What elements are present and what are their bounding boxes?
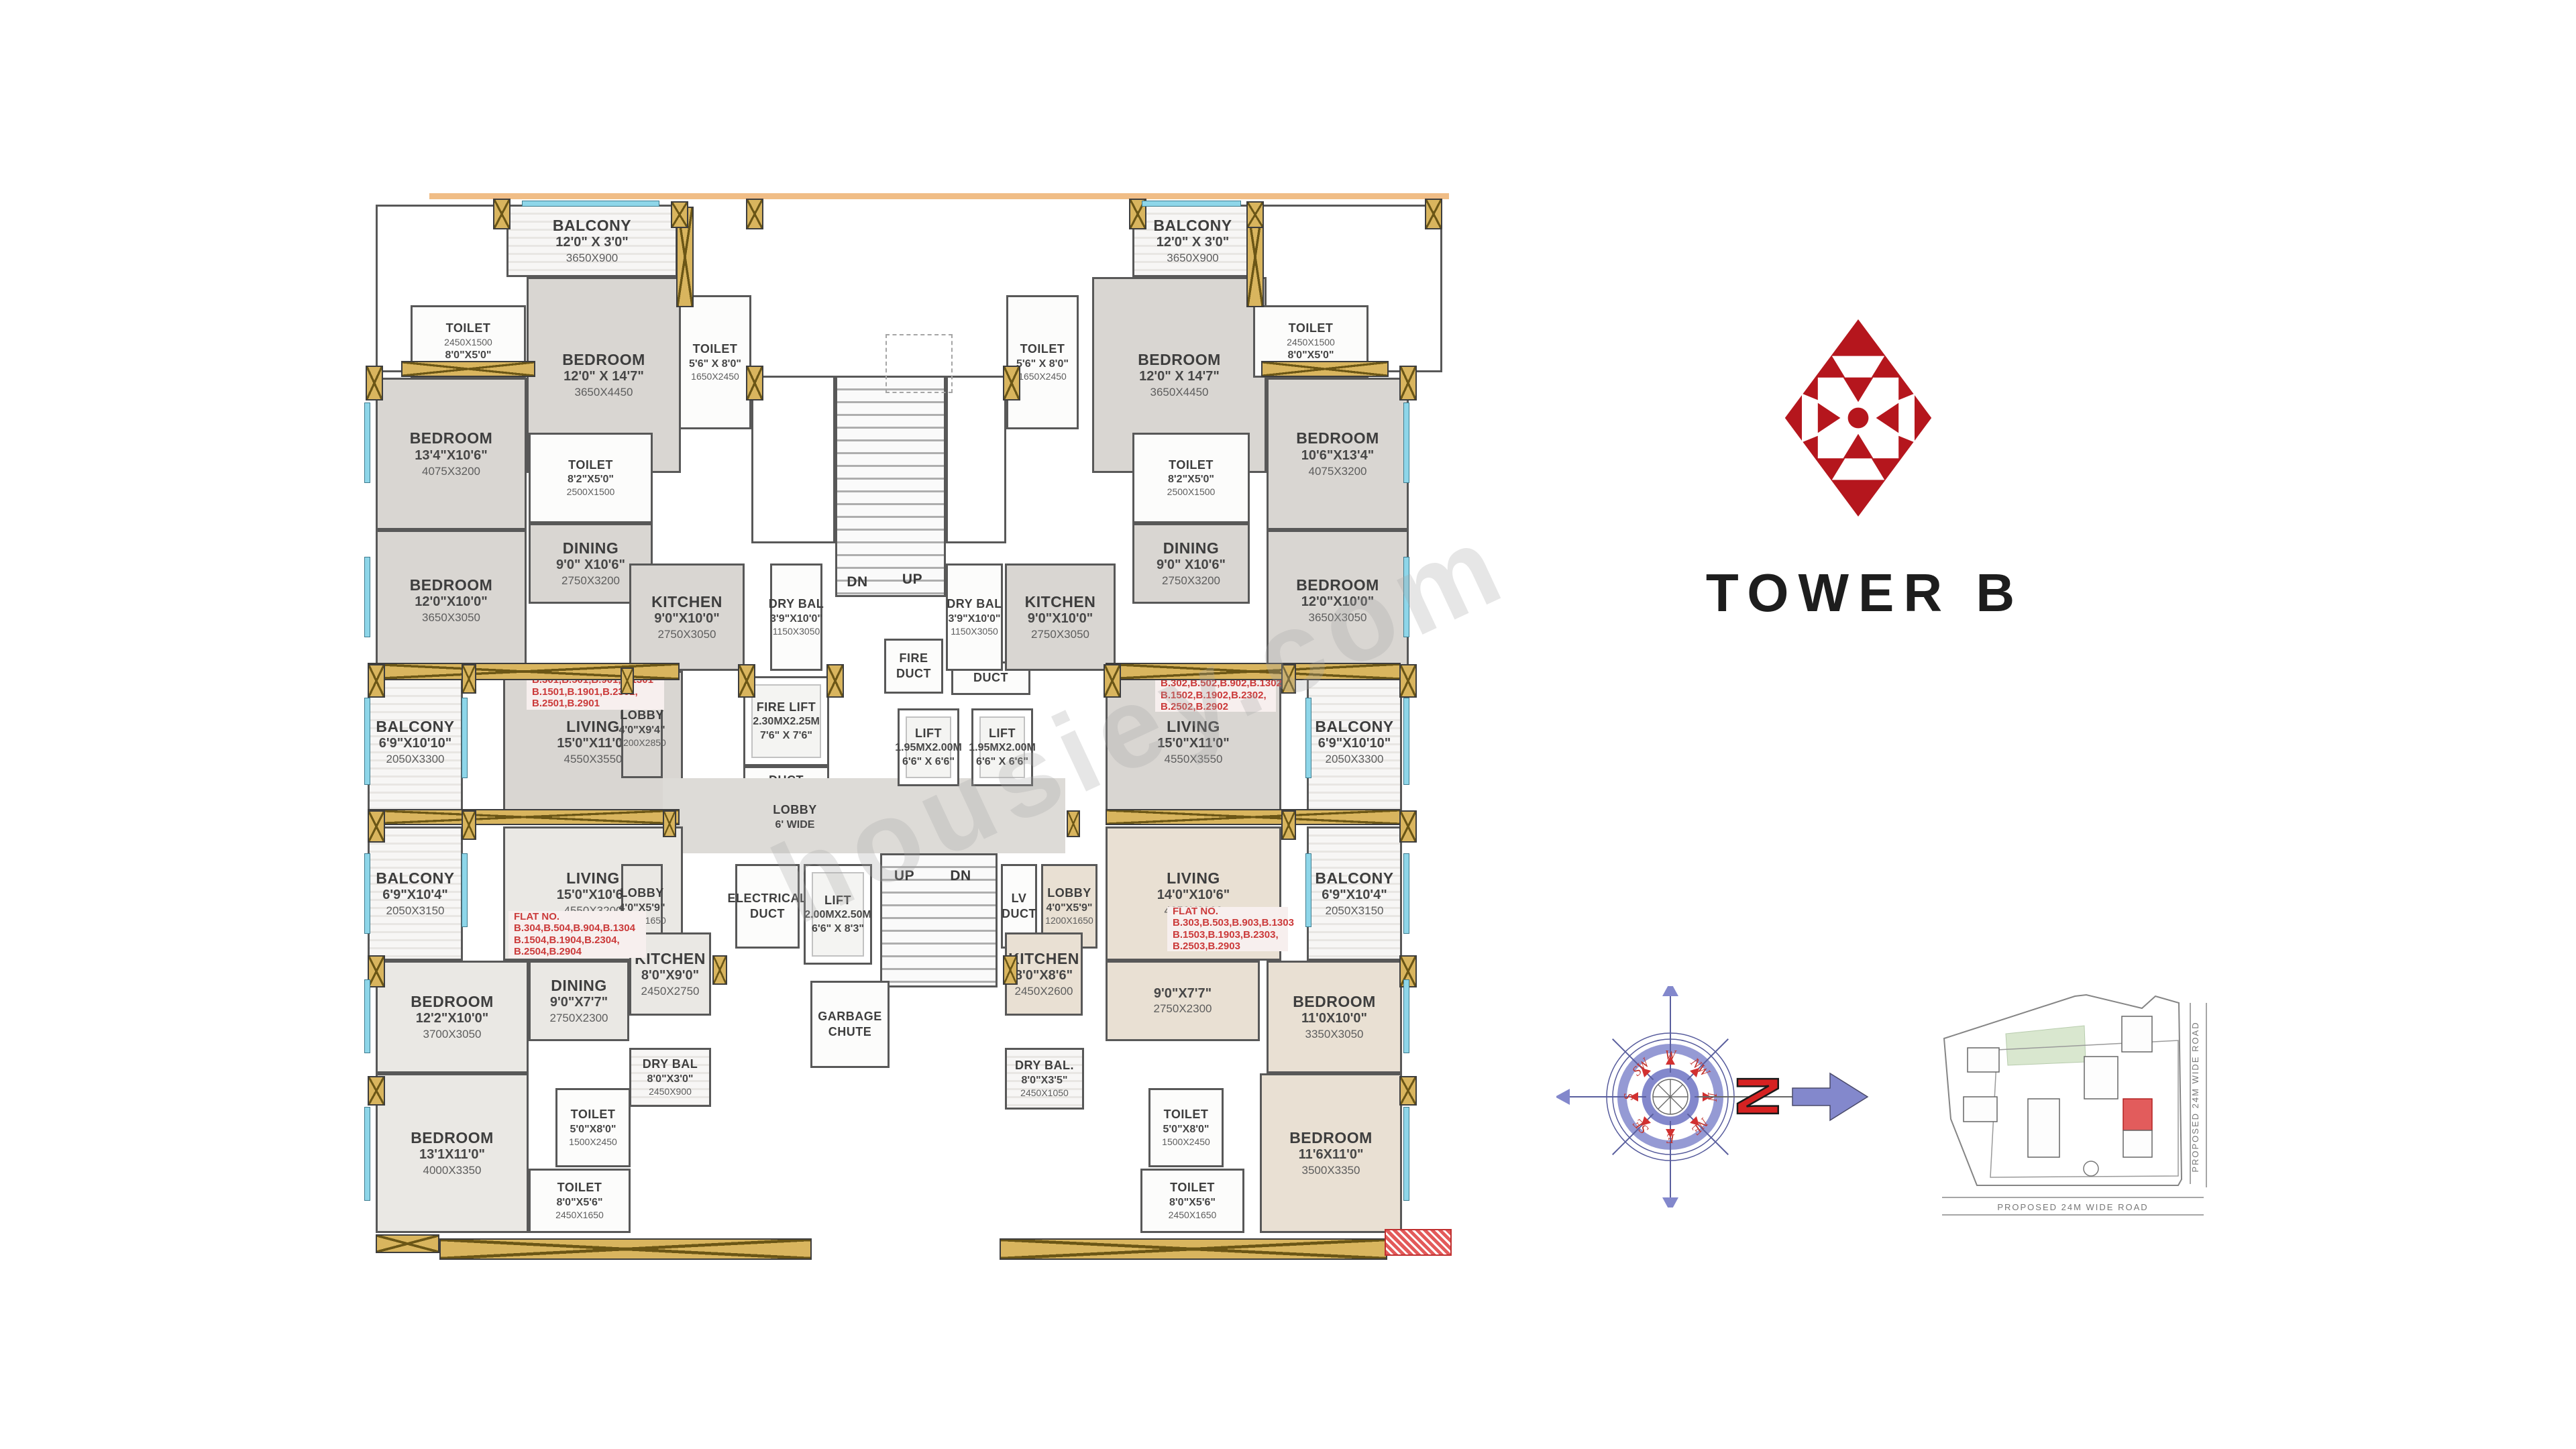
dining-top-right-text: 2750X3200	[1162, 575, 1220, 587]
lobby-bottom-left-text: LOBBY	[620, 887, 664, 900]
toilet-5-right-text: 8'0"X5'6"	[1169, 1197, 1216, 1208]
garbage-chute-text: CHUTE	[828, 1026, 872, 1038]
balcony-bottom-right-text: 2050X3150	[1326, 905, 1384, 917]
lobby-main-text: 6' WIDE	[775, 819, 815, 830]
bedroom-2-right-text: BEDROOM	[1296, 430, 1379, 447]
road-label-right: PROPOSED 24M WIDE ROAD	[2190, 1021, 2200, 1172]
electrical-duct-text: DUCT	[750, 908, 785, 920]
window	[364, 402, 370, 483]
bedroom-2-right: BEDROOM10'6"X13'4"4075X3200	[1267, 378, 1409, 530]
toilet-2-right: TOILET5'6" X 8'0"1650X2450	[1006, 295, 1079, 429]
dining-bottom-right-text: 2750X2300	[1154, 1003, 1212, 1015]
flat-note-1-text: B.2501,B.2901	[532, 698, 600, 709]
drybal-top-left: DRY BAL3'9"X10'0"1150X3050	[770, 563, 822, 671]
flat-note-3-text: B.1503,B.1903,B.2303,	[1173, 930, 1279, 941]
balcony-mid-right: BALCONY6'9"X10'10"2050X3300	[1307, 671, 1402, 813]
flat-note-2-text: B.1502,B.1902,B.2302,	[1161, 690, 1267, 701]
living-top-right-text: 15'0"X11'0"	[1157, 737, 1229, 751]
column	[1246, 201, 1264, 228]
column	[462, 810, 476, 840]
beam	[1106, 809, 1401, 825]
balcony-mid-right-text: BALCONY	[1315, 718, 1393, 735]
flat-note-4: FLAT NO.B.304,B.504,B.904,B.1304B.1504,B…	[508, 911, 646, 958]
duct-right-text: DUCT	[973, 672, 1008, 684]
window	[1305, 853, 1311, 927]
living-top-right-text: 4550X3550	[1165, 753, 1223, 765]
toilet-5-right-text: TOILET	[1170, 1181, 1215, 1194]
kitchen-top-left-text: 9'0"X10'0"	[654, 612, 719, 627]
bedroom-5-right-text: BEDROOM	[1289, 1130, 1373, 1146]
bedroom-5-left-text: 4000X3350	[423, 1165, 482, 1177]
north-arrow	[1792, 1073, 1868, 1120]
kitchen-top-left-text: 2750X3050	[658, 629, 716, 641]
balcony-top-left-text: 12'0" X 3'0"	[555, 235, 629, 250]
bedroom-4-left-text: 3700X3050	[423, 1028, 482, 1040]
label-dn-top: DN	[837, 570, 877, 594]
balcony-mid-left-text: 6'9"X10'10"	[379, 737, 452, 751]
drybal-top-left-text: 3'9"X10'0"	[770, 613, 822, 625]
column	[1425, 199, 1442, 229]
lift-3-text: LIFT	[824, 894, 851, 907]
flat-note-3-text: B.303,B.503,B.903,B.1303	[1173, 918, 1294, 928]
column	[1399, 810, 1417, 843]
drybal-bottom-right-text: 8'0"X3'5"	[1021, 1075, 1067, 1086]
flat-note-4-text: FLAT NO.	[514, 912, 559, 922]
toilet-4-right: TOILET5'0"X8'0"1500X2450	[1148, 1088, 1224, 1167]
column	[1399, 664, 1417, 698]
drybal-bottom-left-text: 8'0"X3'0"	[647, 1073, 693, 1085]
bedroom-5-right-text: 3500X3350	[1302, 1165, 1360, 1177]
drybal-bottom-right-text: 2450X1050	[1020, 1088, 1069, 1098]
balcony-top-left: BALCONY12'0" X 3'0"3650X900	[506, 205, 678, 277]
dining-top-left-text: 9'0" X10'6"	[556, 558, 625, 573]
lift-1-text: 6'6" X 6'6"	[902, 756, 955, 767]
kitchen-top-right-text: KITCHEN	[1025, 594, 1096, 610]
dining-bottom-left-text: 2750X2300	[550, 1012, 608, 1024]
dining-top-left-text: 2750X3200	[561, 575, 620, 587]
duct-dashed	[885, 334, 953, 393]
page: BALCONY12'0" X 3'0"3650X900TOILET2450X15…	[0, 0, 2576, 1449]
compass-part: W	[1665, 1048, 1678, 1063]
site-building	[2123, 1130, 2152, 1157]
column	[366, 366, 383, 400]
lift-1: LIFT1.95MX2.00M6'6" X 6'6"	[898, 708, 959, 786]
site-building	[1964, 1097, 1997, 1122]
column	[1399, 1076, 1417, 1106]
bedroom-5-left-text: 13'1X11'0"	[419, 1148, 485, 1163]
window	[364, 1107, 370, 1201]
living-bottom-left-text: LIVING	[566, 870, 620, 887]
bedroom-2-left: BEDROOM13'4"X10'6"4075X3200	[376, 378, 527, 530]
drybal-top-left-text: DRY BAL	[769, 598, 824, 610]
bedroom-4-left: BEDROOM12'2"X10'0"3700X3050	[376, 961, 529, 1073]
column	[1104, 664, 1121, 698]
toilet-3-left: TOILET8'2"X5'0"2500X1500	[529, 433, 653, 523]
bedroom-2-left-text: 13'4"X10'6"	[415, 449, 488, 464]
garbage-chute: GARBAGECHUTE	[810, 981, 890, 1068]
toilet-1-right-text: 8'0"X5'0"	[1287, 350, 1334, 361]
compass-part	[1662, 1197, 1678, 1207]
toilet-3-right-text: 8'2"X5'0"	[1168, 474, 1214, 485]
toilet-3-right-text: 2500X1500	[1167, 487, 1216, 497]
toilet-1-left-text: TOILET	[446, 322, 491, 335]
bedroom-2-right-text: 4075X3200	[1309, 466, 1367, 478]
column	[663, 810, 676, 837]
kitchen-top-right-text: 2750X3050	[1031, 629, 1089, 641]
lift-2-text: LIFT	[989, 727, 1016, 740]
bedroom-4-right-text: BEDROOM	[1293, 994, 1376, 1010]
window	[1403, 402, 1409, 483]
column	[826, 664, 844, 698]
toilet-1-left-text: 2450X1500	[444, 337, 492, 347]
road-label-bottom: PROPOSED 24M WIDE ROAD	[1997, 1202, 2148, 1212]
toilet-1-right-text: 2450X1500	[1287, 337, 1335, 347]
bedroom-3-left-text: 12'0"X10'0"	[415, 595, 488, 610]
beam	[439, 1238, 812, 1260]
bedroom-4-right-text: 11'0X10'0"	[1301, 1012, 1367, 1026]
site-building	[2028, 1099, 2059, 1157]
balcony-mid-right-text: 6'9"X10'10"	[1318, 737, 1391, 751]
lobby-main: LOBBY6' WIDE	[738, 790, 852, 844]
bedroom-5-left-text: BEDROOM	[411, 1130, 494, 1146]
window	[1403, 853, 1409, 934]
toilet-1-left-text: 8'0"X5'0"	[445, 350, 491, 361]
window	[1403, 979, 1409, 1053]
toilet-5-right: TOILET8'0"X5'6"2450X1650	[1140, 1169, 1244, 1233]
dining-top-right-text: DINING	[1163, 540, 1220, 557]
lift-1-text: 1.95MX2.00M	[895, 742, 962, 753]
balcony-bottom-right-text: 6'9"X10'4"	[1322, 888, 1387, 903]
drybal-bottom-right-text: DRY BAL.	[1015, 1059, 1074, 1072]
window	[364, 979, 370, 1053]
toilet-4-right-text: TOILET	[1164, 1108, 1209, 1121]
balcony-bottom-right: BALCONY6'9"X10'4"2050X3150	[1307, 826, 1402, 961]
lv-duct-text: LV	[1012, 892, 1027, 905]
column	[462, 664, 476, 694]
column	[738, 664, 755, 698]
balcony-top-left-text: BALCONY	[553, 217, 631, 234]
toilet-3-right-text: TOILET	[1169, 459, 1214, 472]
balcony-bottom-left-text: 2050X3150	[386, 905, 445, 917]
column	[1281, 810, 1296, 840]
dining-bottom-right: 9'0"X7'7"2750X2300	[1106, 961, 1260, 1041]
drybal-top-right-text: 3'9"X10'0"	[949, 613, 1001, 625]
drybal-bottom-left: DRY BAL8'0"X3'0"2450X900	[629, 1048, 711, 1107]
dining-bottom-left-text: DINING	[551, 977, 607, 994]
column	[368, 664, 385, 698]
drybal-top-right-text: 1150X3050	[951, 627, 998, 637]
bedroom-5-right-text: 11'6X11'0"	[1299, 1148, 1364, 1163]
living-bottom-left-text: 15'0"X10'6"	[557, 888, 630, 903]
bedroom-3-left: BEDROOM12'0"X10'0"3650X3050	[376, 530, 527, 671]
window	[462, 853, 468, 927]
dining-bottom-right-text: 9'0"X7'7"	[1154, 987, 1212, 1002]
flat-note-4-text: B.304,B.504,B.904,B.1304	[514, 923, 635, 934]
logo-center-dot	[1848, 408, 1869, 429]
flat-note-4-text: B.2504,B.2904	[514, 947, 582, 957]
balcony-mid-left-text: 2050X3300	[386, 753, 445, 765]
site-building	[1968, 1048, 1999, 1072]
toilet-2-right-text: TOILET	[1020, 343, 1065, 356]
toilet-2-left-text: TOILET	[693, 343, 738, 356]
beam	[1261, 361, 1389, 377]
column	[671, 201, 688, 228]
window	[1403, 698, 1409, 785]
kitchen-bottom-right-text: KITCHEN	[1008, 951, 1079, 967]
drybal-top-left-text: 1150X3050	[773, 627, 820, 637]
facade-band	[429, 193, 1449, 199]
compass-part: E	[1666, 1131, 1675, 1146]
window	[522, 201, 659, 207]
lobby-bottom-right-text: 4'0"X5'9"	[1046, 902, 1092, 914]
drybal-bottom-right: DRY BAL.8'0"X3'5"2450X1050	[1005, 1048, 1084, 1110]
key-site-map: PROPOSED 24M WIDE ROAD PROPOSED 24M WIDE…	[1922, 976, 2244, 1271]
fire-duct-text: DUCT	[896, 667, 931, 680]
living-top-left-text: 4550X3550	[564, 753, 623, 765]
bedroom-4-left-text: 12'2"X10'0"	[416, 1012, 489, 1026]
red-corner-marker	[1385, 1229, 1452, 1256]
corridor-lobby	[663, 778, 1065, 853]
toilet-1-right-text: TOILET	[1289, 322, 1334, 335]
beam	[1106, 663, 1401, 680]
bedroom-2-left-text: BEDROOM	[410, 430, 493, 447]
balcony-mid-right-text: 2050X3300	[1326, 753, 1384, 765]
bedroom-1-left-text: 12'0" X 14'7"	[563, 370, 644, 384]
site-building	[2122, 1016, 2152, 1052]
balcony-top-left-text: 3650X900	[566, 252, 619, 264]
toilet-2-left: TOILET5'6" X 8'0"1650X2450	[679, 295, 751, 429]
column	[1067, 810, 1080, 837]
toilet-3-right: TOILET8'2"X5'0"2500X1500	[1132, 433, 1250, 523]
window	[364, 853, 370, 934]
toilet-5-left: TOILET8'0"X5'6"2450X1650	[529, 1169, 631, 1233]
balcony-bottom-left: BALCONY6'9"X10'4"2050X3150	[368, 826, 463, 961]
bedroom-1-right-text: 3650X4450	[1150, 386, 1209, 398]
balcony-top-right-text: 12'0" X 3'0"	[1157, 235, 1230, 250]
dining-top-right-text: 9'0" X10'6"	[1157, 558, 1226, 573]
garbage-chute-text: GARBAGE	[818, 1010, 882, 1023]
bedroom-4-left-text: BEDROOM	[411, 994, 494, 1010]
floor-plan: BALCONY12'0" X 3'0"3650X900TOILET2450X15…	[0, 0, 1576, 1449]
label-up-top-text: UP	[902, 572, 922, 588]
label-up-top: UP	[892, 568, 932, 592]
flat-note-3: FLAT NO.B.303,B.503,B.903,B.1303B.1503,B…	[1167, 907, 1288, 951]
bedroom-4-right-text: 3350X3050	[1305, 1028, 1364, 1040]
toilet-5-right-text: 2450X1650	[1169, 1210, 1217, 1220]
lift-2-text: 1.95MX2.00M	[969, 742, 1036, 753]
fire-lift-text: 7'6" X 7'6"	[760, 730, 812, 741]
flat-note-2-text: B.2502,B.2902	[1161, 702, 1228, 712]
toilet-3-left-text: TOILET	[568, 459, 613, 472]
balcony-bottom-left-text: BALCONY	[376, 870, 454, 887]
beam	[1000, 1238, 1387, 1260]
toilet-3-left-text: 2500X1500	[567, 487, 615, 497]
toilet-5-left-text: TOILET	[557, 1181, 602, 1194]
balcony-top-right-text: 3650X900	[1167, 252, 1219, 264]
kitchen-bottom-left-text: 8'0"X9'0"	[641, 969, 699, 983]
fire-lift: FIRE LIFT2.30MX2.25M7'6" X 7'6"	[743, 676, 829, 766]
toilet-4-right-text: 1500X2450	[1162, 1137, 1210, 1147]
label-dn-bottom-text: DN	[950, 869, 971, 884]
kitchen-bottom-right-text: 2450X2600	[1015, 985, 1073, 998]
drybal-bottom-left-text: 2450X900	[649, 1087, 692, 1097]
kitchen-top-left-text: KITCHEN	[651, 594, 722, 610]
electrical-duct: ELECTRICALDUCT	[735, 864, 800, 949]
lobby-bottom-right-text: LOBBY	[1047, 887, 1091, 900]
column	[712, 955, 727, 985]
lift-1-text: LIFT	[915, 727, 942, 740]
compass-part: SW	[1629, 1055, 1654, 1079]
bedroom-1-left-text: 3650X4450	[575, 386, 633, 398]
drybal-top-right: DRY BAL3'9"X10'0"1150X3050	[946, 563, 1003, 671]
toilet-3-left-text: 8'2"X5'0"	[568, 474, 614, 485]
bedroom-3-right: BEDROOM12'0"X10'0"3650X3050	[1267, 530, 1409, 671]
lift-3-text: 6'6" X 8'3"	[812, 923, 864, 934]
living-bottom-right-text: LIVING	[1167, 870, 1220, 887]
fire-duct: FIREDUCT	[884, 639, 943, 694]
flat-note-4-text: B.1504,B.1904,B.2304,	[514, 935, 620, 946]
toilet-5-left-text: 2450X1650	[555, 1210, 604, 1220]
beam	[376, 1234, 439, 1253]
dining-bottom-left: DINING9'0"X7'7"2750X2300	[529, 961, 629, 1041]
bedroom-5-left: BEDROOM13'1X11'0"4000X3350	[376, 1073, 529, 1233]
beam	[401, 361, 535, 377]
bedroom-3-left-text: 3650X3050	[422, 612, 480, 624]
window	[364, 557, 370, 637]
toilet-2-left-text: 1650X2450	[691, 372, 739, 382]
living-top-right-text: LIVING	[1167, 718, 1220, 735]
lv-duct-text: DUCT	[1002, 908, 1036, 920]
bedroom-2-right-text: 10'6"X13'4"	[1301, 449, 1375, 464]
lift-3-text: 2.00MX2.50M	[804, 909, 871, 920]
lift-2-text: 6'6" X 6'6"	[976, 756, 1028, 767]
toilet-4-right-text: 5'0"X8'0"	[1163, 1124, 1209, 1135]
label-dn-bottom: DN	[941, 864, 981, 888]
electrical-duct-text: ELECTRICAL	[728, 892, 808, 905]
compass-part	[1662, 986, 1678, 996]
hatch-core-right	[946, 376, 1006, 543]
lobby-top-left-text: 1200X2850	[618, 738, 666, 748]
compass-part	[1556, 1089, 1570, 1105]
dining-top-right: DINING9'0" X10'6"2750X3200	[1132, 523, 1250, 604]
bedroom-4-right: BEDROOM11'0X10'0"3350X3050	[1267, 961, 1402, 1073]
north-letter: N	[1725, 1075, 1791, 1118]
kitchen-top-right-text: 9'0"X10'0"	[1028, 612, 1093, 627]
bedroom-2-left-text: 4075X3200	[422, 466, 480, 478]
lobby-top-left-text: 4'0"X9'4"	[619, 724, 665, 736]
dining-bottom-left-text: 9'0"X7'7"	[550, 996, 608, 1010]
tower-title: TOWER B	[1603, 562, 2127, 624]
column	[1399, 366, 1417, 400]
lobby-main-text: LOBBY	[773, 804, 817, 816]
flat-note-3-text: FLAT NO.	[1173, 906, 1218, 917]
toilet-5-left-text: 8'0"X5'6"	[556, 1197, 602, 1208]
lobby-bottom-right-text: 1200X1650	[1045, 916, 1093, 926]
window	[364, 698, 370, 785]
bedroom-3-left-text: BEDROOM	[410, 577, 493, 594]
window	[1142, 201, 1241, 207]
column	[746, 199, 763, 229]
fire-lift-text: FIRE LIFT	[757, 701, 816, 714]
toilet-2-left-text: 5'6" X 8'0"	[689, 358, 741, 370]
compass-part: S	[1621, 1093, 1636, 1100]
kitchen-bottom-right-text: 8'0"X8'6"	[1015, 969, 1073, 983]
bedroom-5-right: BEDROOM11'6X11'0"3500X3350	[1260, 1073, 1402, 1233]
kitchen-top-left: KITCHEN9'0"X10'0"2750X3050	[629, 563, 745, 671]
fire-lift-text: 2.30MX2.25M	[753, 716, 820, 727]
column	[493, 199, 511, 229]
column	[621, 667, 634, 694]
column	[368, 1076, 385, 1106]
drybal-top-right-text: DRY BAL	[947, 598, 1002, 610]
column	[368, 810, 385, 843]
toilet-4-left-text: 5'0"X8'0"	[570, 1124, 616, 1135]
bedroom-3-right-text: 12'0"X10'0"	[1301, 595, 1375, 610]
toilet-2-right-text: 5'6" X 8'0"	[1016, 358, 1069, 370]
window	[1403, 557, 1409, 637]
balcony-bottom-left-text: 6'9"X10'4"	[382, 888, 447, 903]
lobby-top-left-text: LOBBY	[620, 709, 664, 722]
column	[1281, 664, 1296, 694]
column	[746, 366, 763, 400]
window	[462, 698, 468, 778]
lift-3: LIFT2.00MX2.50M6'6" X 8'3"	[804, 864, 872, 965]
diamond-star-logo	[1764, 314, 1952, 522]
bedroom-1-right-text: BEDROOM	[1138, 352, 1221, 368]
window	[1305, 698, 1311, 778]
compass-rose-icon: NNEESESSWWNW N	[1556, 986, 1872, 1207]
stairs-top	[835, 376, 946, 597]
lift-2: LIFT1.95MX2.00M6'6" X 6'6"	[971, 708, 1033, 786]
dining-top-left-text: DINING	[563, 540, 619, 557]
flat-note-3-text: B.2503,B.2903	[1173, 941, 1240, 952]
column	[1003, 955, 1018, 985]
toilet-2-right-text: 1650X2450	[1018, 372, 1067, 382]
window	[1403, 1107, 1409, 1201]
label-dn-top-text: DN	[847, 575, 867, 590]
toilet-4-left-text: 1500X2450	[569, 1137, 617, 1147]
fire-duct-text: FIRE	[899, 652, 928, 665]
beam	[368, 809, 680, 825]
toilet-4-left-text: TOILET	[571, 1108, 616, 1121]
label-up-bottom-text: UP	[894, 869, 914, 884]
toilet-4-left: TOILET5'0"X8'0"1500X2450	[555, 1088, 631, 1167]
bedroom-3-right-text: 3650X3050	[1309, 612, 1367, 624]
kitchen-top-right: KITCHEN9'0"X10'0"2750X3050	[1005, 563, 1116, 671]
bedroom-1-right-text: 12'0" X 14'7"	[1139, 370, 1220, 384]
site-building	[2084, 1057, 2118, 1099]
column	[1003, 366, 1020, 400]
balcony-bottom-right-text: BALCONY	[1315, 870, 1393, 887]
living-top-left-text: LIVING	[566, 718, 620, 735]
bedroom-3-right-text: BEDROOM	[1296, 577, 1379, 594]
site-building-tower-b	[2123, 1099, 2152, 1130]
hatch-core-left	[751, 376, 835, 543]
drybal-bottom-left-text: DRY BAL	[643, 1058, 698, 1071]
balcony-top-right: BALCONY12'0" X 3'0"3650X900	[1132, 205, 1253, 277]
balcony-top-right-text: BALCONY	[1153, 217, 1232, 234]
kitchen-bottom-left-text: 2450X2750	[641, 985, 700, 998]
label-up-bottom: UP	[884, 864, 924, 888]
living-bottom-right-text: 14'0"X10'6"	[1157, 888, 1230, 903]
bedroom-1-left-text: BEDROOM	[562, 352, 645, 368]
balcony-mid-left-text: BALCONY	[376, 718, 454, 735]
